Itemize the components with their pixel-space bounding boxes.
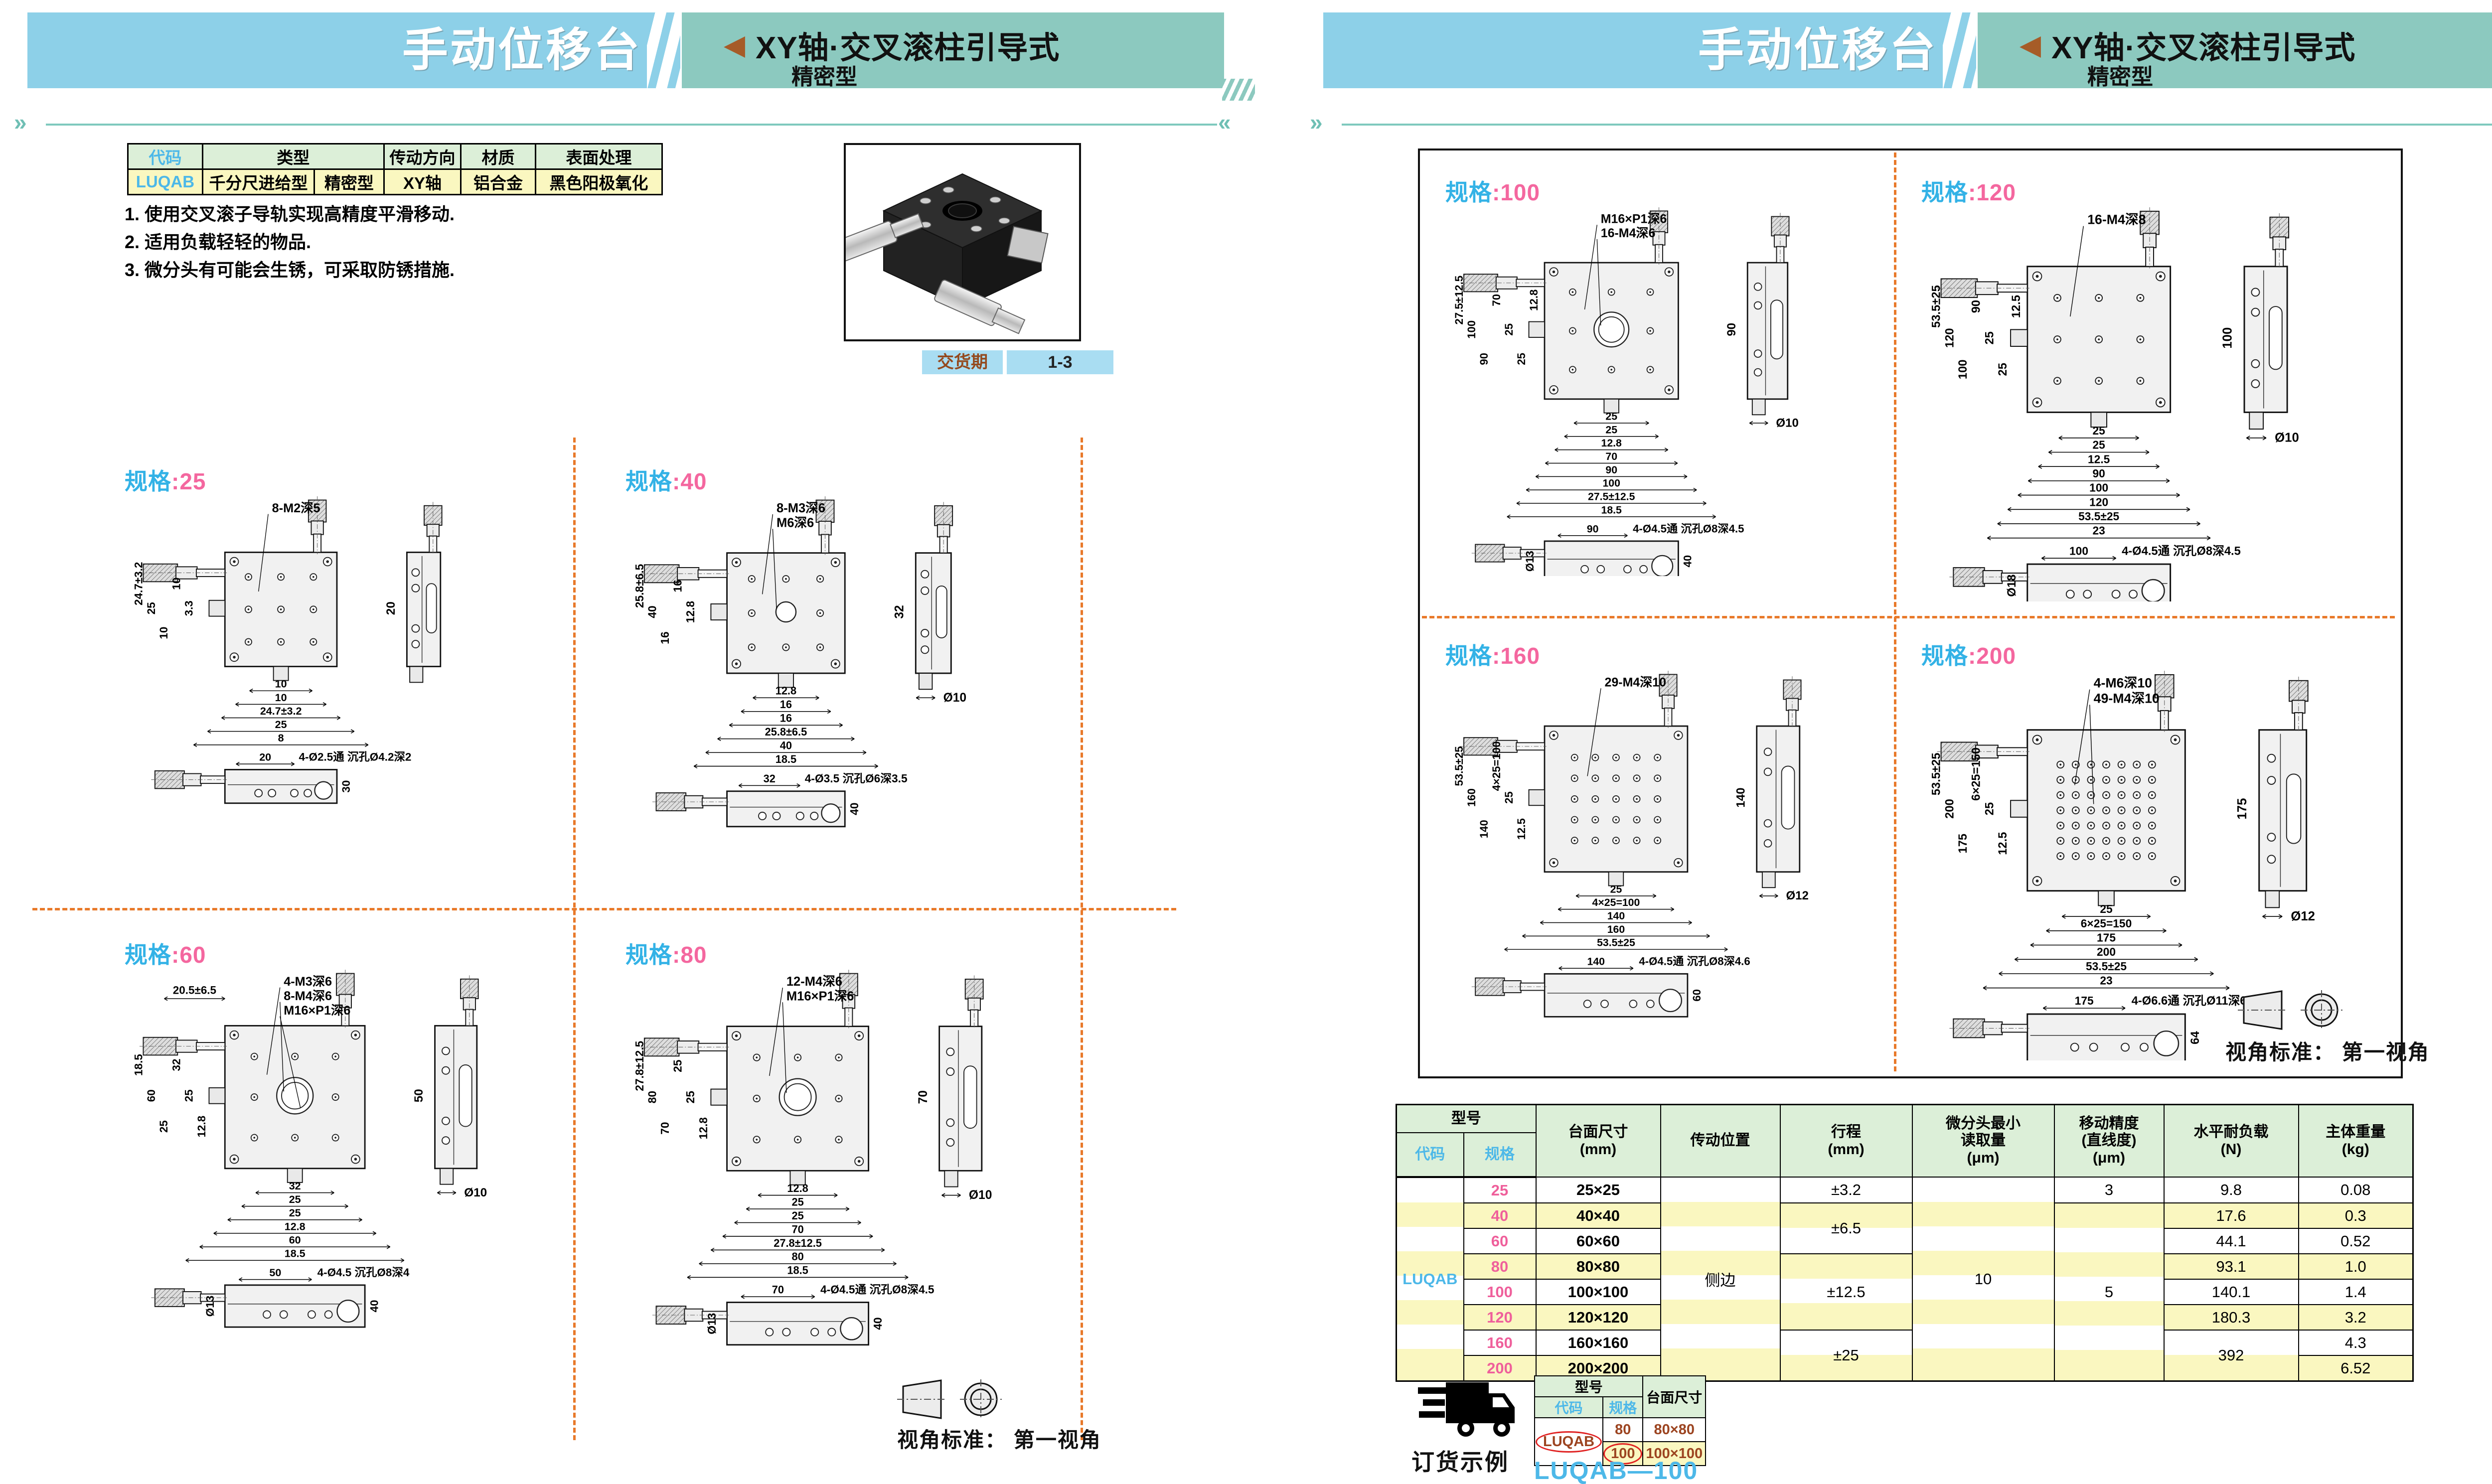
svg-text:24.7±3.2: 24.7±3.2 [260, 705, 302, 717]
order-col-code: 代码 [1535, 1397, 1603, 1418]
svg-text:120: 120 [1943, 328, 1956, 348]
svg-text:M16×P1深6: M16×P1深6 [284, 1004, 350, 1018]
cell-travel: ±12.5 [1780, 1254, 1912, 1330]
svg-text:70: 70 [658, 1122, 671, 1134]
technical-drawing: 90Ø10M16×P1深616-M4深627.5±12.510090702525… [1445, 207, 1879, 576]
svg-text:Ø13: Ø13 [204, 1296, 216, 1317]
order-example-title: 订货示例 [1411, 1444, 1509, 1477]
svg-text:16: 16 [780, 698, 792, 711]
svg-text:8-M3深6: 8-M3深6 [777, 501, 825, 515]
svg-text:32: 32 [289, 1180, 301, 1192]
svg-text:25: 25 [145, 602, 157, 614]
note-line: 2. 适用负载轻轻的物品. [125, 228, 822, 256]
svg-text:12.8: 12.8 [1601, 437, 1622, 449]
svg-text:40: 40 [871, 1317, 884, 1330]
svg-text:25: 25 [1605, 424, 1617, 436]
svg-text:25: 25 [1610, 883, 1622, 895]
svg-text:60: 60 [1691, 989, 1703, 1002]
svg-text:100: 100 [1957, 359, 1970, 379]
svg-text:16: 16 [780, 712, 792, 725]
svg-text:16: 16 [658, 631, 671, 644]
spec-label-prefix: 规格 [625, 942, 672, 968]
spec-label-value: :200 [1968, 643, 2016, 669]
col-reading: 微分头最小 读取量 (μm) [1912, 1105, 2054, 1178]
spec-label-prefix: 规格 [1445, 643, 1492, 669]
svg-text:Ø12: Ø12 [1786, 889, 1808, 902]
product-photo [844, 143, 1081, 341]
svg-text:12.5: 12.5 [2010, 295, 2023, 318]
svg-text:23: 23 [2093, 524, 2105, 537]
col-load: 水平耐负载 (N) [2164, 1105, 2299, 1178]
note-line: 3. 微分头有可能会生锈，可采取防锈措施. [125, 256, 822, 284]
col-model: 型号 [1397, 1105, 1536, 1133]
svg-text:64: 64 [2189, 1031, 2202, 1044]
svg-text:25: 25 [1983, 331, 1996, 344]
svg-text:29-M4深10: 29-M4深10 [1604, 675, 1666, 689]
svg-text:Ø13: Ø13 [1524, 551, 1536, 572]
svg-text:25: 25 [1503, 791, 1515, 804]
svg-text:4-Ø3.5 沉孔Ø6深3.5: 4-Ø3.5 沉孔Ø6深3.5 [805, 772, 908, 785]
spec-panel-40: 规格:4032Ø108-M3深6M6深625.8±6.540161612.812… [625, 463, 1069, 902]
order-col-size: 台面尺寸 [1643, 1376, 1706, 1418]
delivery-label: 交货期 [922, 350, 1003, 374]
svg-text:4-Ø2.5通 沉孔Ø4.2深2: 4-Ø2.5通 沉孔Ø4.2深2 [299, 751, 412, 763]
order-example-table: 型号 台面尺寸 代码 规格 LUQAB 80 80×80 100 100×100 [1534, 1375, 1706, 1466]
spec-panel-100: 规格:10090Ø10M16×P1深616-M4深627.5±12.510090… [1445, 174, 1879, 603]
svg-text:Ø12: Ø12 [2291, 909, 2315, 923]
info-material: 铝合金 [461, 169, 536, 195]
svg-text:140: 140 [1734, 787, 1748, 807]
svg-text:200: 200 [1943, 799, 1956, 819]
svg-text:6×25=150: 6×25=150 [1970, 747, 1983, 801]
svg-text:16-M4深6: 16-M4深6 [1601, 226, 1656, 240]
col-accuracy: 移动精度 (直线度) (μm) [2054, 1105, 2164, 1178]
spec-label-prefix: 规格 [1445, 179, 1492, 205]
svg-text:160: 160 [1465, 788, 1478, 807]
svg-text:4-Ø4.5 沉孔Ø8深4: 4-Ø4.5 沉孔Ø8深4 [317, 1266, 410, 1279]
svg-text:25: 25 [791, 1209, 803, 1222]
view-standard-note: 视角标准： 第一视角 [870, 1423, 1129, 1454]
svg-text:25: 25 [1515, 353, 1528, 365]
spec-table: 型号 台面尺寸 (mm) 传动位置 行程 (mm) 微分头最小 读取量 (μm)… [1396, 1104, 2414, 1382]
svg-text:10: 10 [275, 678, 287, 690]
svg-text:32: 32 [893, 605, 907, 618]
svg-text:16-M4深8: 16-M4深8 [2087, 212, 2146, 227]
svg-text:100: 100 [2220, 327, 2234, 349]
svg-text:Ø18: Ø18 [2006, 575, 2019, 597]
chevron-icon: « [1218, 111, 1231, 134]
svg-text:160: 160 [1607, 923, 1625, 935]
svg-text:25: 25 [671, 1060, 684, 1072]
svg-text:40: 40 [646, 605, 659, 618]
svg-text:27.5±12.5: 27.5±12.5 [1453, 276, 1465, 325]
svg-text:53.5±25: 53.5±25 [1597, 937, 1635, 949]
svg-text:12.8: 12.8 [787, 1182, 808, 1194]
svg-text:60: 60 [145, 1089, 157, 1102]
product-info-table: 代码 类型 传动方向 材质 表面处理 LUQAB 千分尺进给型 精密型 XY轴 … [127, 143, 663, 195]
svg-text:25.8±6.5: 25.8±6.5 [633, 564, 646, 608]
spec-panel-80: 规格:8070Ø1012-M4深6M16×P1深627.8±12.5807025… [625, 937, 1069, 1440]
svg-text:175: 175 [2075, 994, 2094, 1007]
order-result: LUQAB—100 [1534, 1456, 1698, 1484]
svg-text:M16×P1深6: M16×P1深6 [786, 990, 854, 1004]
spec-label-prefix: 规格 [125, 942, 171, 968]
left-triangle-icon: ◀ [2020, 31, 2041, 59]
svg-text:10: 10 [275, 692, 287, 704]
svg-text:25: 25 [183, 1089, 195, 1102]
col-weight: 主体重量 (kg) [2299, 1105, 2413, 1178]
spec-label-value: :25 [171, 468, 206, 494]
cell-accuracy: 5 [2054, 1203, 2164, 1381]
svg-text:60: 60 [289, 1234, 301, 1246]
cell-load: 392 [2164, 1330, 2299, 1381]
svg-text:40: 40 [848, 803, 861, 815]
svg-text:4-Ø4.5通 沉孔Ø8深4.5: 4-Ø4.5通 沉孔Ø8深4.5 [820, 1283, 934, 1296]
cell-travel: ±3.2 [1780, 1177, 1912, 1203]
svg-text:90: 90 [1725, 323, 1738, 336]
svg-text:25: 25 [289, 1207, 301, 1219]
svg-text:80: 80 [791, 1250, 803, 1263]
svg-text:90: 90 [2093, 467, 2105, 480]
svg-text:53.5±25: 53.5±25 [1453, 746, 1465, 786]
divider-dashed-vertical [573, 438, 576, 1440]
svg-text:4-M6深10: 4-M6深10 [2094, 676, 2152, 691]
table-row: LUQAB 25 25×25 侧边 ±3.2 10 3 9.8 0.08 [1397, 1177, 2413, 1203]
cell-drive-position: 侧边 [1661, 1177, 1780, 1381]
svg-text:8: 8 [278, 732, 284, 744]
svg-text:140: 140 [1587, 956, 1605, 968]
order-col-model: 型号 [1535, 1376, 1643, 1397]
svg-text:25: 25 [1503, 323, 1515, 336]
info-type-main: 千分尺进给型 [202, 169, 314, 195]
first-angle-symbol [2238, 989, 2352, 1034]
spec-label-prefix: 规格 [1921, 179, 1968, 205]
svg-text:25: 25 [289, 1193, 301, 1205]
technical-drawing: 50Ø1020.5±6.54-M3深68-M4深6M16×P1深618.5602… [125, 970, 563, 1413]
svg-text:140: 140 [1478, 820, 1490, 838]
divider-dashed-horizontal [1422, 616, 2395, 618]
svg-text:4-M3深6: 4-M3深6 [284, 975, 332, 989]
technical-drawing: 140Ø1229-M4深1053.5±251601404×25=1002512.… [1445, 671, 1879, 1035]
svg-text:12.8: 12.8 [285, 1220, 306, 1232]
order-col-spec: 规格 [1603, 1397, 1643, 1418]
info-header-code: 代码 [128, 144, 203, 169]
svg-text:90: 90 [1970, 300, 1983, 313]
spec-label: 规格:60 [125, 937, 563, 970]
svg-text:4-Ø4.5通 沉孔Ø8深4.5: 4-Ø4.5通 沉孔Ø8深4.5 [1633, 522, 1744, 535]
svg-text:30: 30 [340, 780, 352, 793]
spec-label: 规格:100 [1445, 174, 1879, 207]
info-direction: XY轴 [384, 169, 461, 195]
col-code: 代码 [1397, 1133, 1464, 1177]
svg-text:8-M4深6: 8-M4深6 [284, 989, 332, 1003]
spec-label-value: :60 [171, 942, 206, 968]
svg-text:Ø13: Ø13 [705, 1313, 718, 1335]
svg-text:20: 20 [259, 751, 271, 763]
svg-text:12.8: 12.8 [684, 601, 697, 623]
svg-text:25: 25 [2093, 424, 2106, 437]
svg-text:27.5±12.5: 27.5±12.5 [1588, 491, 1635, 503]
info-header-direction: 传动方向 [384, 144, 461, 169]
view-standard-note: 视角标准： 第一视角 [2203, 1036, 2452, 1066]
svg-text:12.8: 12.8 [195, 1116, 208, 1138]
col-spec: 规格 [1464, 1133, 1536, 1177]
divider-dashed-vertical [1081, 438, 1083, 1440]
svg-text:27.8±12.5: 27.8±12.5 [633, 1041, 646, 1091]
header-rule-right [1342, 124, 2492, 126]
svg-text:40: 40 [1681, 555, 1694, 568]
svg-text:70: 70 [772, 1283, 784, 1296]
svg-text:Ø10: Ø10 [969, 1188, 992, 1202]
chevron-icon: » [1310, 111, 1323, 134]
page-title: 手动位移台 [27, 12, 680, 88]
feature-notes: 1. 使用交叉滚子导轨实现高精度平滑移动. 2. 适用负载轻轻的物品. 3. 微… [125, 200, 822, 284]
svg-text:10: 10 [170, 578, 182, 590]
cell-travel: ±25 [1780, 1330, 1912, 1381]
svg-text:70: 70 [791, 1223, 803, 1235]
svg-text:18.5: 18.5 [776, 753, 796, 765]
svg-text:90: 90 [1605, 464, 1617, 476]
svg-text:27.8±12.5: 27.8±12.5 [774, 1237, 822, 1249]
technical-drawing: 32Ø108-M3深6M6深625.8±6.540161612.812.8161… [625, 496, 1069, 874]
spec-label-value: :40 [672, 468, 707, 494]
svg-text:Ø10: Ø10 [1776, 416, 1798, 430]
svg-text:50: 50 [269, 1267, 281, 1279]
info-surface: 黑色阳极氧化 [535, 169, 662, 195]
first-angle-symbol [897, 1378, 1012, 1423]
svg-text:90: 90 [1587, 523, 1599, 535]
svg-text:18.5: 18.5 [133, 1054, 145, 1076]
svg-text:53.5±25: 53.5±25 [1930, 753, 1943, 796]
svg-text:90: 90 [1478, 353, 1490, 365]
spec-label-value: :160 [1492, 643, 1540, 669]
svg-text:12.5: 12.5 [1515, 818, 1528, 840]
subcategory-title: 精密型 [791, 59, 857, 91]
svg-text:4×25=100: 4×25=100 [1592, 896, 1640, 908]
col-travel: 行程 (mm) [1780, 1105, 1912, 1178]
svg-text:40: 40 [780, 739, 792, 751]
order-spec: 80 [1603, 1418, 1643, 1442]
technical-drawing: 100Ø1016-M4深853.5±2512010090252512.52525… [1921, 207, 2385, 601]
svg-text:25: 25 [1983, 802, 1996, 815]
header-rule-left [46, 124, 1217, 126]
svg-text:100: 100 [1602, 477, 1620, 489]
spec-label-value: :80 [672, 942, 707, 968]
svg-text:140: 140 [1607, 910, 1625, 922]
left-triangle-icon: ◀ [724, 31, 745, 59]
svg-text:100: 100 [2069, 544, 2088, 557]
svg-text:53.5±25: 53.5±25 [2078, 510, 2119, 523]
svg-text:M16×P1深6: M16×P1深6 [1601, 212, 1667, 226]
svg-text:25: 25 [1605, 410, 1617, 422]
stage-photo-illustration [846, 145, 1079, 339]
chevron-icon: » [14, 111, 27, 134]
cell-code: LUQAB [1397, 1177, 1464, 1381]
spec-label: 规格:40 [625, 463, 1069, 496]
col-size: 台面尺寸 (mm) [1536, 1105, 1661, 1178]
col-drive: 传动位置 [1661, 1105, 1780, 1178]
svg-text:12.8: 12.8 [776, 685, 796, 697]
info-header-surface: 表面处理 [535, 144, 662, 169]
cell-reading: 10 [1912, 1177, 2054, 1381]
svg-text:23: 23 [2100, 974, 2112, 987]
svg-text:100: 100 [2089, 481, 2108, 494]
svg-text:18.5: 18.5 [787, 1264, 808, 1277]
svg-text:70: 70 [1605, 450, 1617, 462]
svg-text:8-M2深5: 8-M2深5 [272, 501, 320, 515]
spec-panel-60: 规格:6050Ø1020.5±6.54-M3深68-M4深6M16×P1深618… [125, 937, 563, 1440]
spec-panel-160: 规格:160140Ø1229-M4深1053.5±251601404×25=10… [1445, 638, 1879, 1066]
info-code: LUQAB [128, 169, 203, 195]
spec-label: 规格:160 [1445, 638, 1879, 671]
info-header-type: 类型 [202, 144, 384, 169]
technical-drawing: 70Ø1012-M4深6M16×P1深627.8±12.58070252512.… [625, 970, 1069, 1418]
svg-text:80: 80 [646, 1091, 659, 1103]
svg-text:175: 175 [2235, 798, 2249, 820]
catalog-spread: 手动位移台 ◀ XY轴·交叉滚柱引导式 精密型 » « 手动位移台 ◀ XY轴·… [0, 0, 2492, 1484]
svg-text:20: 20 [384, 601, 398, 615]
cell-travel: ±6.5 [1780, 1203, 1912, 1254]
svg-text:18.5: 18.5 [1601, 504, 1622, 516]
svg-text:25: 25 [1997, 363, 2010, 376]
spec-label-value: :120 [1968, 179, 2016, 205]
svg-text:Ø10: Ø10 [464, 1186, 487, 1199]
header-band-blue-right: 手动位移台 [1323, 12, 1976, 88]
svg-text:53.5±25: 53.5±25 [2086, 960, 2127, 973]
svg-text:53.5±25: 53.5±25 [1930, 285, 1943, 328]
svg-text:50: 50 [412, 1089, 426, 1102]
svg-text:10: 10 [157, 627, 170, 639]
svg-text:20.5±6.5: 20.5±6.5 [173, 984, 216, 997]
svg-text:Ø10: Ø10 [2275, 431, 2299, 445]
svg-text:25: 25 [157, 1120, 170, 1133]
svg-text:12.8: 12.8 [697, 1117, 710, 1139]
table-row: 40 40×40 ±6.5 5 17.6 0.3 [1397, 1203, 2413, 1228]
info-header-material: 材质 [461, 144, 536, 169]
divider-dashed-vertical [1894, 152, 1896, 1071]
spec-label: 规格:200 [1921, 638, 2385, 671]
table-row: 80 80×80 ±12.5 93.1 1.0 [1397, 1254, 2413, 1279]
spec-label-prefix: 规格 [625, 468, 672, 494]
svg-text:120: 120 [2089, 495, 2108, 508]
subcategory-title: 精密型 [2087, 59, 2153, 91]
truck-icon [1418, 1376, 1523, 1445]
svg-text:25: 25 [2093, 439, 2106, 451]
spec-panel-25: 规格:25208-M2深524.7±3.22510103.3101024.7±3… [125, 463, 563, 902]
svg-text:100: 100 [1465, 320, 1478, 339]
svg-text:12.8: 12.8 [1528, 290, 1540, 311]
svg-text:175: 175 [1957, 834, 1970, 854]
svg-text:12.5: 12.5 [1997, 832, 2010, 855]
svg-text:32: 32 [170, 1058, 182, 1071]
delivery-value: 1-3 [1007, 350, 1113, 374]
note-line: 1. 使用交叉滚子导轨实现高精度平滑移动. [125, 200, 822, 228]
svg-text:70: 70 [917, 1090, 930, 1104]
cell-accuracy: 3 [2054, 1177, 2164, 1203]
svg-text:M6深6: M6深6 [777, 516, 814, 530]
header-band-blue-left: 手动位移台 [27, 12, 680, 88]
svg-text:40: 40 [368, 1300, 380, 1312]
svg-text:12.5: 12.5 [2088, 452, 2110, 465]
header-deco-slashes [1222, 79, 1255, 101]
spec-label: 规格:25 [125, 463, 563, 496]
svg-text:25: 25 [2100, 902, 2113, 915]
table-row: 160 160×160 ±25 392 4.3 [1397, 1330, 2413, 1355]
svg-text:200: 200 [2097, 945, 2116, 958]
svg-text:4-Ø4.5通 沉孔Ø8深4.6: 4-Ø4.5通 沉孔Ø8深4.6 [1639, 955, 1750, 968]
svg-text:175: 175 [2097, 931, 2116, 944]
spec-label: 规格:80 [625, 937, 1069, 970]
svg-text:49-M4深10: 49-M4深10 [2094, 691, 2160, 706]
svg-text:18.5: 18.5 [285, 1248, 306, 1260]
svg-text:24.7±3.2: 24.7±3.2 [133, 562, 145, 605]
spec-label: 规格:120 [1921, 174, 2385, 207]
divider-dashed-horizontal [32, 908, 1176, 910]
technical-drawing: 208-M2深524.7±3.22510103.3101024.7±3.2258… [125, 496, 563, 870]
spec-label-prefix: 规格 [125, 468, 171, 494]
svg-text:4×25=100: 4×25=100 [1490, 741, 1503, 791]
svg-text:6×25=150: 6×25=150 [2081, 917, 2132, 930]
svg-text:Ø10: Ø10 [943, 691, 967, 705]
spec-label-value: :100 [1492, 179, 1540, 205]
svg-text:12-M4深6: 12-M4深6 [786, 975, 842, 989]
svg-text:4-Ø4.5通 沉孔Ø8深4.5: 4-Ø4.5通 沉孔Ø8深4.5 [2122, 544, 2241, 558]
svg-text:3.3: 3.3 [183, 600, 195, 616]
order-size: 80×80 [1643, 1418, 1706, 1442]
svg-text:25: 25 [791, 1195, 803, 1208]
svg-text:25: 25 [684, 1091, 697, 1103]
spec-label-prefix: 规格 [1921, 643, 1968, 669]
svg-text:25: 25 [275, 719, 287, 731]
spec-panel-120: 规格:120100Ø1016-M4深853.5±2512010090252512… [1921, 174, 2385, 603]
svg-text:70: 70 [1490, 294, 1503, 306]
svg-text:25.8±6.5: 25.8±6.5 [765, 726, 807, 738]
svg-text:32: 32 [764, 772, 776, 785]
page-title: 手动位移台 [1323, 12, 1976, 88]
info-type-sub: 精密型 [314, 169, 384, 195]
svg-text:16: 16 [671, 580, 684, 592]
